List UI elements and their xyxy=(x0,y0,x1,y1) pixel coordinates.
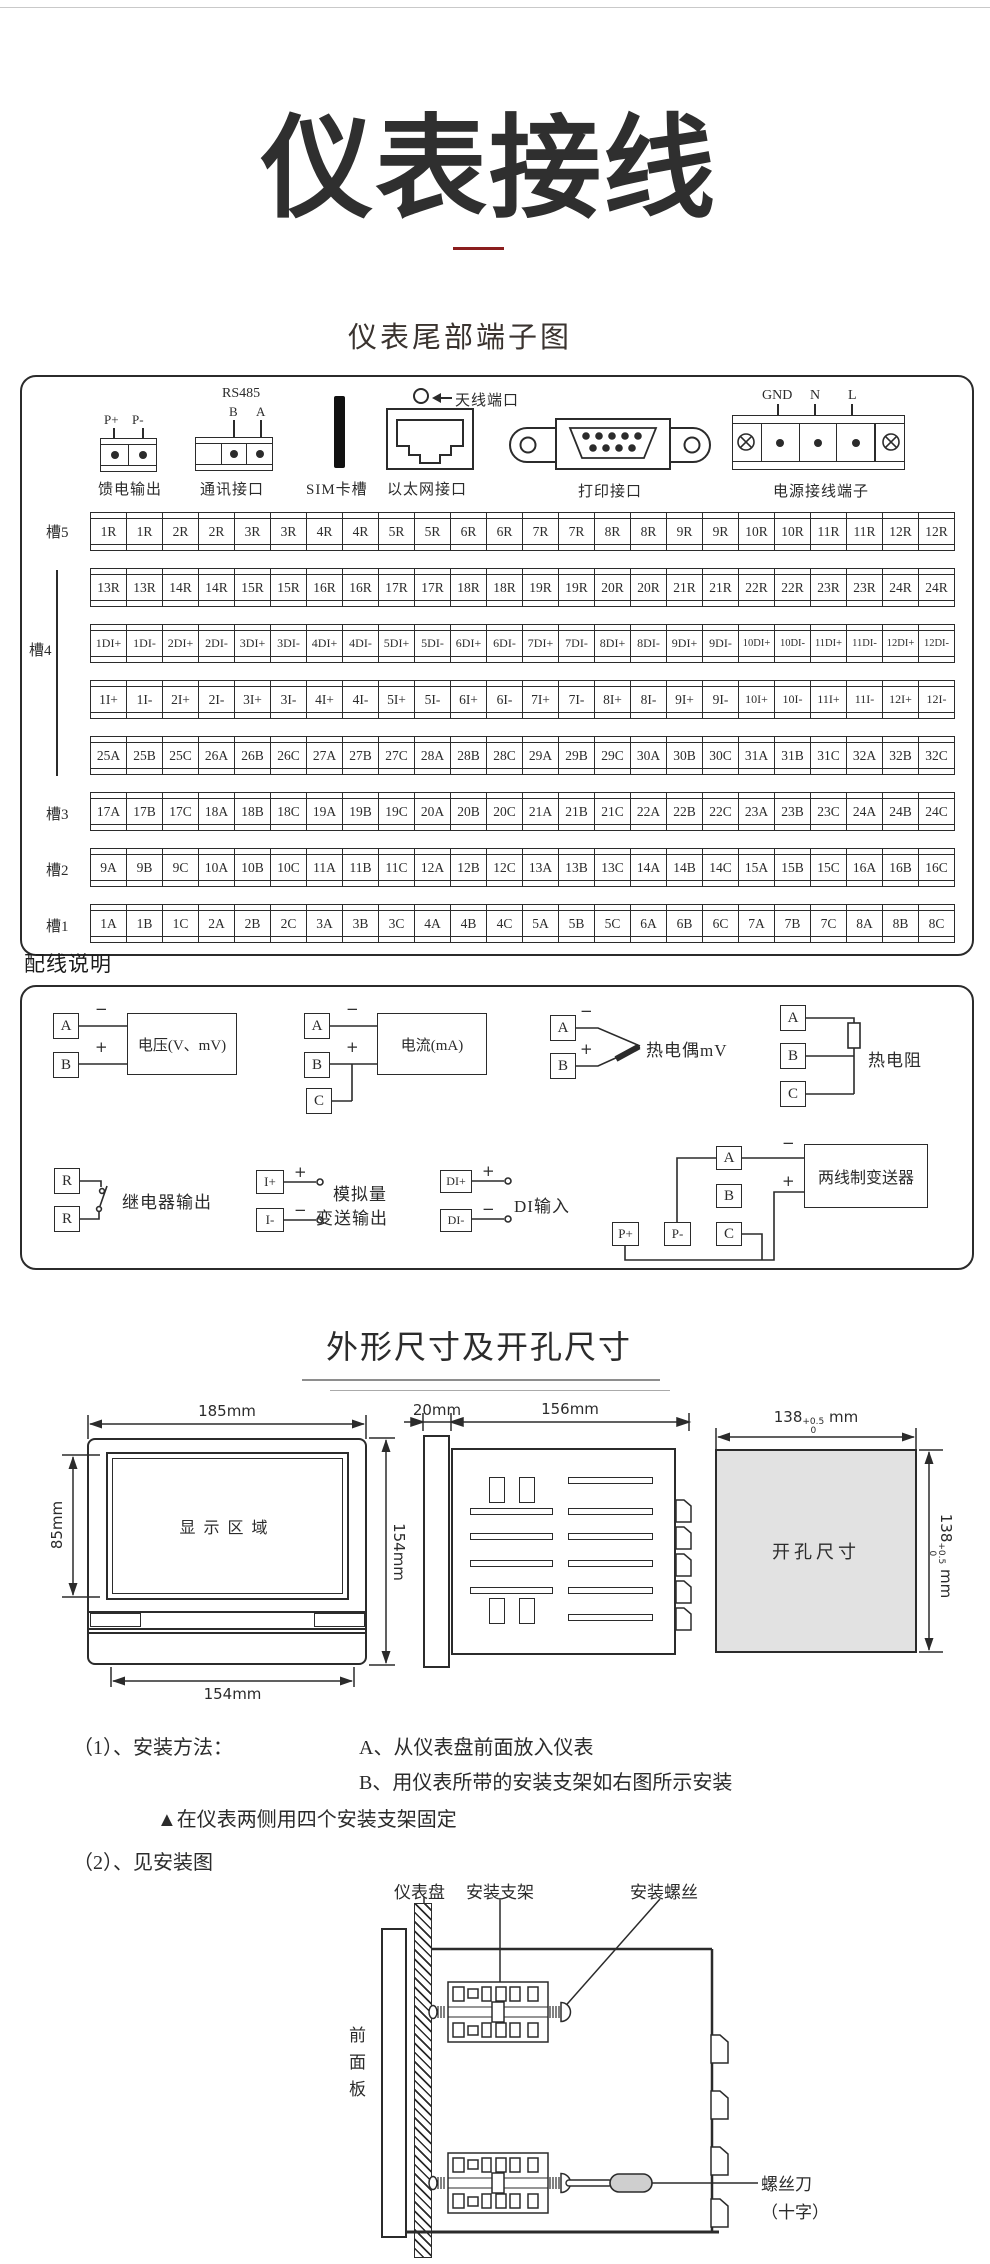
heading-underline-1 xyxy=(302,1379,660,1381)
terminal-cell: 11DI- xyxy=(847,625,883,662)
terminal-p-plus: P+ xyxy=(612,1222,639,1246)
terminal-cell: 6DI+ xyxy=(451,625,487,662)
terminal-cell: 12C xyxy=(487,849,523,886)
terminal-cell: 20R xyxy=(595,569,631,606)
terminal-cell: 20B xyxy=(451,793,487,830)
printer-label: 打印接口 xyxy=(578,480,642,501)
terminal-cell: 3DI+ xyxy=(235,625,271,662)
terminal-r2: R xyxy=(54,1206,80,1232)
voltage-box: 电压(V、mV) xyxy=(127,1013,237,1075)
terminal-cell: 22B xyxy=(667,793,703,830)
terminal-cell: 15B xyxy=(775,849,811,886)
sign-minus: − xyxy=(95,1000,108,1018)
terminal-cell: 9I- xyxy=(703,681,739,718)
terminal-cell: 32B xyxy=(883,737,919,774)
terminal-cell: 4I- xyxy=(343,681,379,718)
terminal-cell: 4A xyxy=(415,905,451,942)
terminal-cell: 3C xyxy=(379,905,415,942)
terminal-cell: 18R xyxy=(451,569,487,606)
transmitter-box: 两线制变送器 xyxy=(804,1144,928,1208)
terminal-cell: 7DI- xyxy=(559,625,595,662)
terminal-cell: 13A xyxy=(523,849,559,886)
antenna-arrow-tail xyxy=(440,397,452,399)
terminal-cell: 1A xyxy=(91,905,127,942)
terminal-cell: 18B xyxy=(235,793,271,830)
antenna-port-label: 天线端口 xyxy=(455,389,519,410)
terminal-cell: 19A xyxy=(307,793,343,830)
terminal-cell: 3I+ xyxy=(235,681,271,718)
terminal-cell: 4I+ xyxy=(307,681,343,718)
slot4-bracket-line xyxy=(56,570,58,776)
terminal-strip-row: 1I+1I-2I+2I-3I+3I-4I+4I-5I+5I-6I+6I-7I+7… xyxy=(90,680,955,719)
terminal-cell: 5DI+ xyxy=(379,625,415,662)
terminal-cell: 20C xyxy=(487,793,523,830)
terminal-cell: 16A xyxy=(847,849,883,886)
terminal-cell: 11I+ xyxy=(811,681,847,718)
terminal-cell: 3I- xyxy=(271,681,307,718)
terminal-cell: 31A xyxy=(739,737,775,774)
terminal-cell: 24C xyxy=(919,793,954,830)
terminal-cell: 32A xyxy=(847,737,883,774)
terminal-cell: 7C xyxy=(811,905,847,942)
terminal-cell: 9C xyxy=(163,849,199,886)
install-step1-a: A、从仪表盘前面放入仪表 xyxy=(359,1731,593,1760)
terminal-i-minus: I- xyxy=(256,1208,284,1232)
terminal-cell: 12R xyxy=(919,513,954,550)
install-diagram-svg xyxy=(0,1860,990,2264)
terminal-cell: 5I+ xyxy=(379,681,415,718)
comm-port-label: 通讯接口 xyxy=(200,478,264,499)
terminal-cell: 7R xyxy=(559,513,595,550)
slot-label-1: 槽1 xyxy=(46,915,69,936)
terminal-c: C xyxy=(780,1081,806,1107)
terminal-b: B xyxy=(550,1053,576,1079)
terminal-strip-row: 17A17B17C18A18B18C19A19B19C20A20B20C21A2… xyxy=(90,792,955,831)
page-title: 仪表接线 xyxy=(0,78,978,240)
terminal-cell: 4R xyxy=(307,513,343,550)
terminal-cell: 13C xyxy=(595,849,631,886)
terminal-cell: 16R xyxy=(307,569,343,606)
install-step1-label: （1）、安装方法： xyxy=(73,1731,233,1760)
terminal-cell: 24R xyxy=(919,569,954,606)
terminal-cell: 19C xyxy=(379,793,415,830)
terminal-cell: 2R xyxy=(163,513,199,550)
terminal-strip-row: 9A9B9C10A10B10C11A11B11C12A12B12C13A13B1… xyxy=(90,848,955,887)
terminal-cell: 7A xyxy=(739,905,775,942)
terminal-a: A xyxy=(53,1013,79,1039)
terminal-i-plus: I+ xyxy=(256,1170,284,1194)
terminal-cell: 22C xyxy=(703,793,739,830)
terminal-strip-row: 1DI+1DI-2DI+2DI-3DI+3DI-4DI+4DI-5DI+5DI-… xyxy=(90,624,955,663)
terminal-cell: 13R xyxy=(91,569,127,606)
sign-minus: − xyxy=(294,1201,307,1219)
terminal-cell: 8A xyxy=(847,905,883,942)
terminal-cell: 20R xyxy=(631,569,667,606)
terminal-cell: 11R xyxy=(847,513,883,550)
terminal-cell: 21A xyxy=(523,793,559,830)
terminal-cell: 15C xyxy=(811,849,847,886)
terminal-cell: 5C xyxy=(595,905,631,942)
terminal-cell: 13B xyxy=(559,849,595,886)
sign-plus: + xyxy=(95,1038,108,1056)
terminal-cell: 28A xyxy=(415,737,451,774)
ethernet-label: 以太网接口 xyxy=(387,478,467,499)
terminal-cell: 27C xyxy=(379,737,415,774)
terminal-cell: 25A xyxy=(91,737,127,774)
feed-pin-p-plus: P+ xyxy=(104,412,119,428)
sign-plus: + xyxy=(294,1163,307,1181)
terminal-cell: 10A xyxy=(199,849,235,886)
terminal-cell: 23C xyxy=(811,793,847,830)
terminal-cell: 11B xyxy=(343,849,379,886)
top-divider xyxy=(0,7,990,8)
terminal-cell: 1B xyxy=(127,905,163,942)
terminal-strip-row: 1R1R2R2R3R3R4R4R5R5R6R6R7R7R8R8R9R9R10R1… xyxy=(90,512,955,551)
terminal-cell: 6I- xyxy=(487,681,523,718)
terminal-cell: 2DI+ xyxy=(163,625,199,662)
product-manual-page: 仪表接线 仪表尾部端子图 P+ P- 馈电输出 RS485 B A 通讯接口 S… xyxy=(0,0,990,2264)
terminal-cell: 14A xyxy=(631,849,667,886)
sim-slot-label: SIM卡槽 xyxy=(306,478,368,499)
terminal-cell: 30B xyxy=(667,737,703,774)
terminal-r1: R xyxy=(54,1168,80,1194)
terminal-cell: 12I+ xyxy=(883,681,919,718)
terminal-cell: 2B xyxy=(235,905,271,942)
terminal-cell: 16B xyxy=(883,849,919,886)
terminal-cell: 15R xyxy=(235,569,271,606)
terminal-cell: 24A xyxy=(847,793,883,830)
terminal-cell: 11C xyxy=(379,849,415,886)
terminal-cell: 3B xyxy=(343,905,379,942)
terminal-cell: 5I- xyxy=(415,681,451,718)
install-note: ▲在仪表两侧用四个安装支架固定 xyxy=(157,1803,457,1832)
comm-pin-b: B xyxy=(229,404,238,420)
terminal-cell: 21R xyxy=(703,569,739,606)
terminal-cell: 3R xyxy=(235,513,271,550)
terminal-cell: 23B xyxy=(775,793,811,830)
terminal-cell: 3DI- xyxy=(271,625,307,662)
terminal-cell: 16R xyxy=(343,569,379,606)
terminal-cell: 2C xyxy=(271,905,307,942)
terminal-cell: 9DI+ xyxy=(667,625,703,662)
terminal-cell: 26C xyxy=(271,737,307,774)
terminal-cell: 4DI+ xyxy=(307,625,343,662)
terminal-cell: 15A xyxy=(739,849,775,886)
terminal-cell: 7B xyxy=(775,905,811,942)
terminal-cell: 9R xyxy=(667,513,703,550)
terminal-cell: 21C xyxy=(595,793,631,830)
dimension-lines-svg xyxy=(0,1395,990,1715)
terminal-b: B xyxy=(53,1052,79,1078)
current-box: 电流(mA) xyxy=(377,1013,487,1075)
terminal-cell: 2DI- xyxy=(199,625,235,662)
feed-output-label: 馈电输出 xyxy=(98,478,162,499)
terminal-cell: 19R xyxy=(523,569,559,606)
terminal-b: B xyxy=(780,1043,806,1069)
terminal-cell: 10DI+ xyxy=(739,625,775,662)
terminal-cell: 22A xyxy=(631,793,667,830)
terminal-cell: 14C xyxy=(703,849,739,886)
terminal-cell: 4R xyxy=(343,513,379,550)
printer-connector-icon xyxy=(508,415,716,473)
terminal-b: B xyxy=(304,1052,330,1078)
terminal-cell: 10R xyxy=(775,513,811,550)
terminal-cell: 16C xyxy=(919,849,954,886)
terminal-di-minus: DI- xyxy=(440,1209,472,1232)
terminal-cell: 17A xyxy=(91,793,127,830)
terminal-cell: 9I+ xyxy=(667,681,703,718)
terminal-c: C xyxy=(306,1088,332,1114)
terminal-strip-rows: 1R1R2R2R3R3R4R4R5R5R6R6R7R7R8R8R9R9R10R1… xyxy=(90,512,955,943)
terminal-cell: 2R xyxy=(199,513,235,550)
rtd-label: 热电阻 xyxy=(868,1046,922,1071)
power-pin-gnd: GND xyxy=(762,388,792,404)
terminal-cell: 14B xyxy=(667,849,703,886)
terminal-cell: 6DI- xyxy=(487,625,523,662)
terminal-cell: 10DI- xyxy=(775,625,811,662)
terminal-cell: 20A xyxy=(415,793,451,830)
terminal-cell: 29B xyxy=(559,737,595,774)
slot-label-5: 槽5 xyxy=(46,521,69,542)
terminal-cell: 10I- xyxy=(775,681,811,718)
terminal-strip-row: 1A1B1C2A2B2C3A3B3C4A4B4C5A5B5C6A6B6C7A7B… xyxy=(90,904,955,943)
terminal-cell: 1I+ xyxy=(91,681,127,718)
terminal-cell: 31C xyxy=(811,737,847,774)
terminal-cell: 21B xyxy=(559,793,595,830)
sign-plus: + xyxy=(782,1172,795,1190)
sign-plus: + xyxy=(580,1040,593,1058)
antenna-port-icon xyxy=(413,388,429,404)
terminal-cell: 27B xyxy=(343,737,379,774)
terminal-cell: 21R xyxy=(667,569,703,606)
sign-minus: − xyxy=(580,1002,593,1020)
terminal-a: A xyxy=(780,1005,806,1031)
terminal-cell: 14R xyxy=(163,569,199,606)
feed-pin-p-minus: P- xyxy=(132,412,144,428)
terminal-section-title: 仪表尾部端子图 xyxy=(0,314,920,356)
rs485-label: RS485 xyxy=(222,386,260,402)
terminal-cell: 15R xyxy=(271,569,307,606)
terminal-a: A xyxy=(716,1146,742,1170)
comm-port-block xyxy=(195,437,273,471)
terminal-cell: 18A xyxy=(199,793,235,830)
sign-plus: + xyxy=(482,1162,495,1180)
terminal-cell: 30A xyxy=(631,737,667,774)
terminal-cell: 1C xyxy=(163,905,199,942)
terminal-cell: 31B xyxy=(775,737,811,774)
terminal-cell: 1DI- xyxy=(127,625,163,662)
terminal-cell: 7R xyxy=(523,513,559,550)
terminal-cell: 32C xyxy=(919,737,954,774)
terminal-cell: 14R xyxy=(199,569,235,606)
terminal-cell: 12R xyxy=(883,513,919,550)
terminal-cell: 18C xyxy=(271,793,307,830)
terminal-cell: 2A xyxy=(199,905,235,942)
terminal-cell: 25B xyxy=(127,737,163,774)
terminal-strip-row: 13R13R14R14R15R15R16R16R17R17R18R18R19R1… xyxy=(90,568,955,607)
terminal-cell: 6A xyxy=(631,905,667,942)
terminal-cell: 10B xyxy=(235,849,271,886)
sign-minus: − xyxy=(482,1200,495,1218)
dimension-section-title: 外形尺寸及开孔尺寸 xyxy=(0,1322,958,1368)
terminal-cell: 17B xyxy=(127,793,163,830)
terminal-cell: 22R xyxy=(739,569,775,606)
terminal-cell: 17R xyxy=(379,569,415,606)
terminal-cell: 9R xyxy=(703,513,739,550)
terminal-cell: 10I+ xyxy=(739,681,775,718)
terminal-cell: 17R xyxy=(415,569,451,606)
terminal-cell: 26B xyxy=(235,737,271,774)
terminal-cell: 12DI- xyxy=(919,625,954,662)
terminal-cell: 2I+ xyxy=(163,681,199,718)
terminal-cell: 8B xyxy=(883,905,919,942)
slot-label-2: 槽2 xyxy=(46,859,69,880)
comm-pin-a: A xyxy=(256,404,265,420)
terminal-cell: 7I+ xyxy=(523,681,559,718)
terminal-cell: 7DI+ xyxy=(523,625,559,662)
terminal-cell: 11R xyxy=(811,513,847,550)
power-pin-n: N xyxy=(810,388,820,404)
terminal-cell: 5DI- xyxy=(415,625,451,662)
terminal-cell: 1R xyxy=(127,513,163,550)
terminal-cell: 11DI+ xyxy=(811,625,847,662)
power-label: 电源接线端子 xyxy=(773,480,869,501)
terminal-cell: 23R xyxy=(847,569,883,606)
terminal-a: A xyxy=(304,1013,330,1039)
terminal-cell: 6C xyxy=(703,905,739,942)
terminal-cell: 5R xyxy=(379,513,415,550)
install-step1-b: B、用仪表所带的安装支架如右图所示安装 xyxy=(359,1766,732,1795)
analog-out-label-2: 变送输出 xyxy=(316,1204,388,1229)
terminal-cell: 1I- xyxy=(127,681,163,718)
terminal-b: B xyxy=(716,1184,742,1208)
terminal-cell: 25C xyxy=(163,737,199,774)
terminal-cell: 6B xyxy=(667,905,703,942)
slot-label-4: 槽4 xyxy=(29,639,52,660)
terminal-cell: 1R xyxy=(91,513,127,550)
terminal-cell: 8DI- xyxy=(631,625,667,662)
terminal-cell: 8R xyxy=(595,513,631,550)
terminal-cell: 3R xyxy=(271,513,307,550)
heading-underline-2 xyxy=(330,1390,670,1391)
terminal-cell: 9A xyxy=(91,849,127,886)
terminal-cell: 23R xyxy=(811,569,847,606)
wiring-section-title: 配线说明 xyxy=(24,948,112,978)
terminal-cell: 12I- xyxy=(919,681,954,718)
terminal-cell: 8I+ xyxy=(595,681,631,718)
di-label: DI输入 xyxy=(514,1192,570,1217)
terminal-cell: 12B xyxy=(451,849,487,886)
terminal-cell: 7I- xyxy=(559,681,595,718)
terminal-cell: 8I- xyxy=(631,681,667,718)
power-pin-l: L xyxy=(848,388,857,404)
terminal-cell: 29C xyxy=(595,737,631,774)
terminal-cell: 22R xyxy=(775,569,811,606)
ethernet-jack-inner xyxy=(386,408,474,470)
terminal-cell: 29A xyxy=(523,737,559,774)
terminal-cell: 1DI+ xyxy=(91,625,127,662)
terminal-cell: 11I- xyxy=(847,681,883,718)
terminal-cell: 30C xyxy=(703,737,739,774)
terminal-strip-row: 25A25B25C26A26B26C27A27B27C28A28B28C29A2… xyxy=(90,736,955,775)
terminal-cell: 5R xyxy=(415,513,451,550)
terminal-cell: 8DI+ xyxy=(595,625,631,662)
terminal-cell: 11A xyxy=(307,849,343,886)
terminal-di-plus: DI+ xyxy=(440,1170,472,1193)
power-screw-icons xyxy=(732,415,905,470)
terminal-cell: 6I+ xyxy=(451,681,487,718)
sign-minus: − xyxy=(346,1000,359,1018)
terminal-cell: 3A xyxy=(307,905,343,942)
terminal-cell: 28C xyxy=(487,737,523,774)
terminal-cell: 9DI- xyxy=(703,625,739,662)
terminal-cell: 12DI+ xyxy=(883,625,919,662)
terminal-cell: 19R xyxy=(559,569,595,606)
terminal-cell: 24R xyxy=(883,569,919,606)
title-accent-rule xyxy=(453,247,504,250)
terminal-cell: 10R xyxy=(739,513,775,550)
terminal-cell: 8C xyxy=(919,905,954,942)
terminal-cell: 5A xyxy=(523,905,559,942)
terminal-a: A xyxy=(550,1015,576,1041)
terminal-cell: 4C xyxy=(487,905,523,942)
terminal-cell: 4B xyxy=(451,905,487,942)
terminal-cell: 5B xyxy=(559,905,595,942)
terminal-cell: 13R xyxy=(127,569,163,606)
slot-label-3: 槽3 xyxy=(46,803,69,824)
thermocouple-label: 热电偶mV xyxy=(646,1036,728,1061)
relay-label: 继电器输出 xyxy=(122,1188,212,1213)
terminal-cell: 2I- xyxy=(199,681,235,718)
terminal-cell: 17C xyxy=(163,793,199,830)
terminal-cell: 8R xyxy=(631,513,667,550)
terminal-cell: 4DI- xyxy=(343,625,379,662)
terminal-c: C xyxy=(716,1222,742,1246)
terminal-cell: 6R xyxy=(451,513,487,550)
terminal-cell: 26A xyxy=(199,737,235,774)
sim-slot-icon xyxy=(334,396,345,468)
sign-minus: − xyxy=(782,1134,795,1152)
terminal-cell: 19B xyxy=(343,793,379,830)
terminal-cell: 10C xyxy=(271,849,307,886)
terminal-cell: 27A xyxy=(307,737,343,774)
feed-output-block xyxy=(100,438,157,472)
terminal-cell: 24B xyxy=(883,793,919,830)
terminal-cell: 18R xyxy=(487,569,523,606)
sign-plus: + xyxy=(346,1038,359,1056)
terminal-cell: 6R xyxy=(487,513,523,550)
analog-out-label-1: 模拟量 xyxy=(333,1180,387,1205)
terminal-cell: 23A xyxy=(739,793,775,830)
terminal-cell: 9B xyxy=(127,849,163,886)
terminal-cell: 28B xyxy=(451,737,487,774)
terminal-p-minus: P- xyxy=(664,1222,691,1246)
terminal-cell: 12A xyxy=(415,849,451,886)
